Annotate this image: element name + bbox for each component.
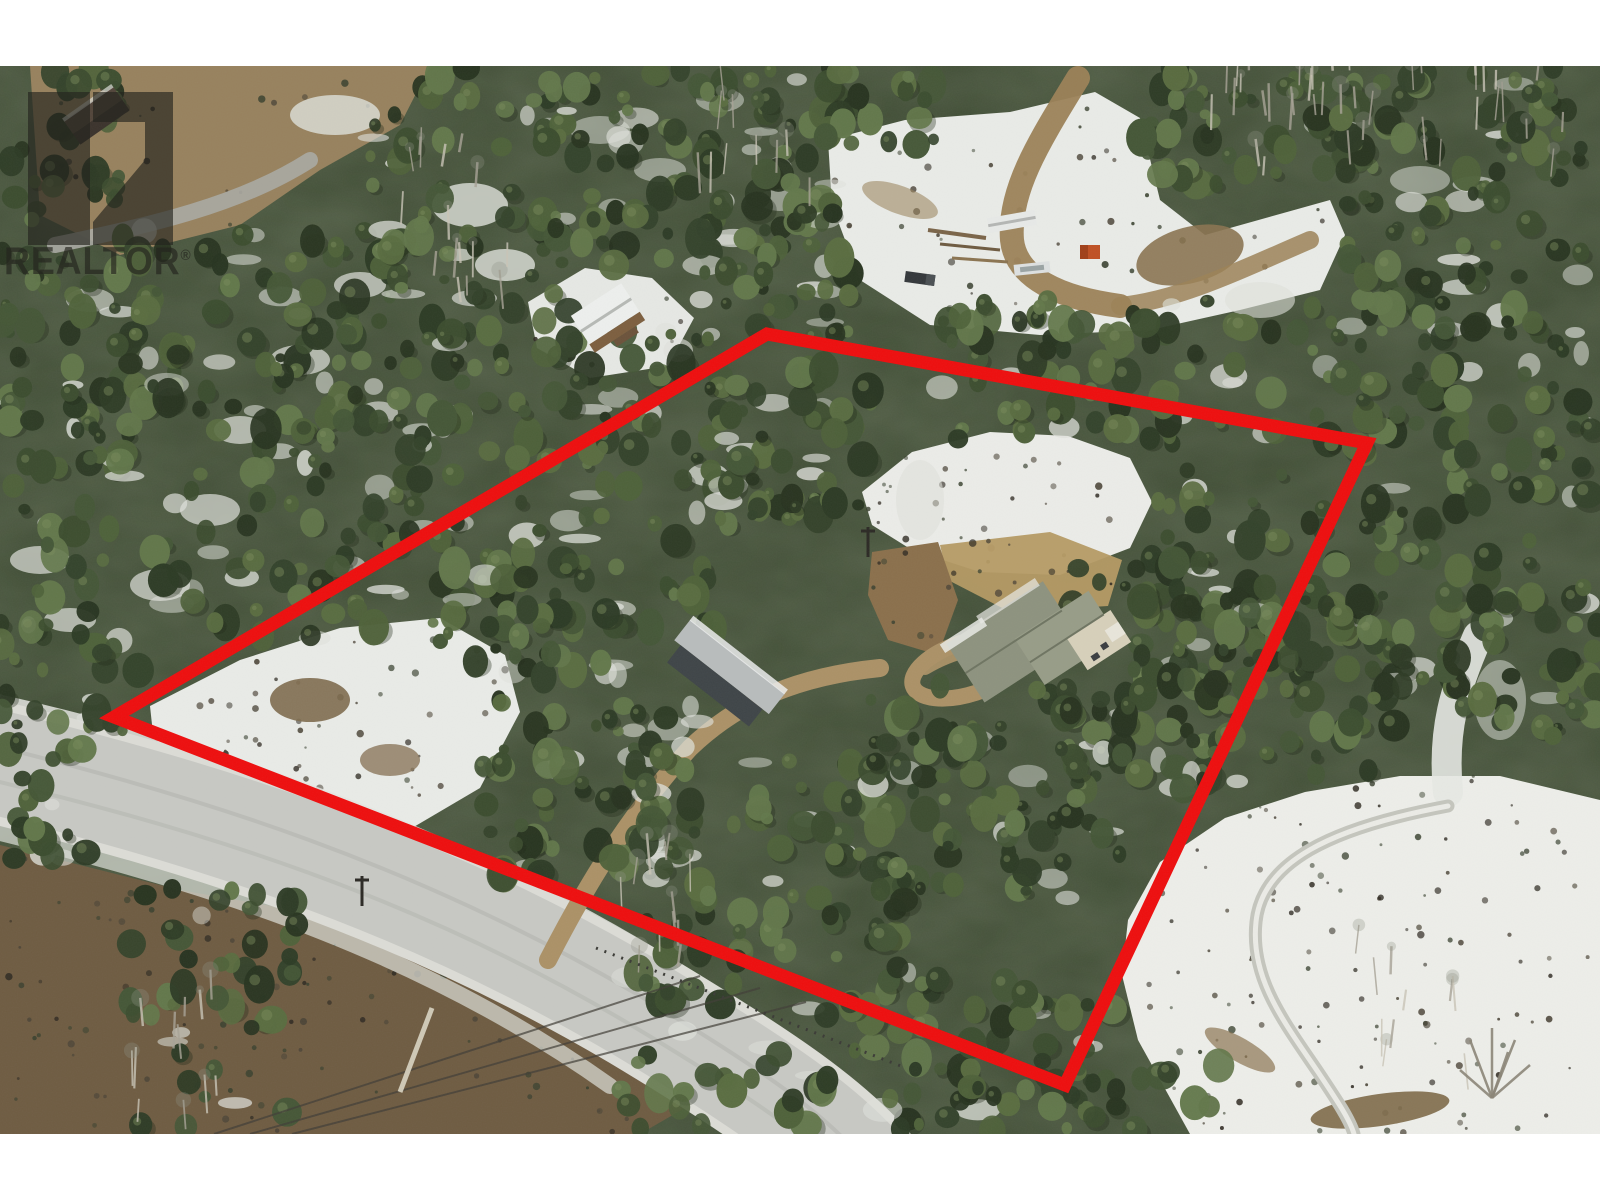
listing-photo-page: REALTOR® <box>0 0 1600 1200</box>
photo-grain <box>0 66 1600 1134</box>
aerial-photo-svg <box>0 66 1600 1134</box>
aerial-photo: REALTOR® <box>0 66 1600 1134</box>
